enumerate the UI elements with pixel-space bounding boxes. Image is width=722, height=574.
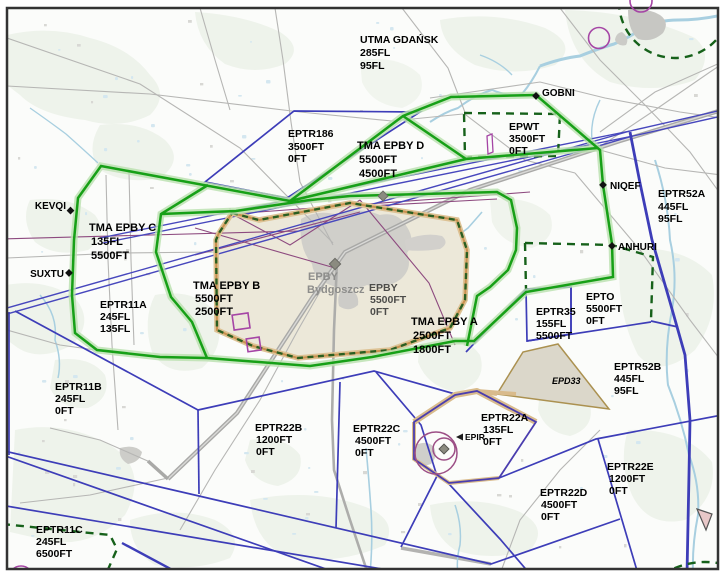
svg-text:135FL: 135FL xyxy=(100,323,131,335)
svg-text:UTMA GDAŃSK: UTMA GDAŃSK xyxy=(360,33,439,46)
svg-text:EPTR186: EPTR186 xyxy=(288,128,334,140)
svg-text:EPBY: EPBY xyxy=(308,271,339,283)
svg-text:0FT: 0FT xyxy=(256,446,275,458)
svg-text:285FL: 285FL xyxy=(360,47,391,59)
svg-text:245FL: 245FL xyxy=(100,311,131,323)
svg-text:EPBY: EPBY xyxy=(369,282,398,294)
svg-text:4500FT: 4500FT xyxy=(355,435,392,447)
svg-text:0FT: 0FT xyxy=(509,145,528,157)
svg-text:NIQEF: NIQEF xyxy=(610,181,641,192)
svg-text:KEVQI: KEVQI xyxy=(35,201,66,212)
svg-text:EPTR22E: EPTR22E xyxy=(607,461,654,473)
svg-text:EPTR22B: EPTR22B xyxy=(255,422,303,434)
svg-text:EPTR22D: EPTR22D xyxy=(540,487,588,499)
svg-text:EPTR11A: EPTR11A xyxy=(100,299,147,311)
svg-text:ANHURI: ANHURI xyxy=(618,242,657,253)
svg-text:6500FT: 6500FT xyxy=(36,548,73,560)
svg-text:2500FT: 2500FT xyxy=(413,330,451,342)
svg-text:95FL: 95FL xyxy=(360,60,385,72)
svg-text:2500FT: 2500FT xyxy=(195,306,233,318)
svg-text:3500FT: 3500FT xyxy=(509,133,546,145)
svg-text:EPWT: EPWT xyxy=(509,121,540,133)
svg-text:0FT: 0FT xyxy=(55,405,74,417)
svg-text:TMA EPBY A: TMA EPBY A xyxy=(411,316,478,328)
svg-text:1200FT: 1200FT xyxy=(609,473,646,485)
svg-text:0FT: 0FT xyxy=(483,436,502,448)
svg-text:245FL: 245FL xyxy=(36,536,67,548)
svg-text:5500FT: 5500FT xyxy=(359,154,397,166)
svg-text:0FT: 0FT xyxy=(370,306,389,318)
svg-text:3500FT: 3500FT xyxy=(288,141,325,153)
svg-text:445FL: 445FL xyxy=(658,201,689,213)
svg-text:TMA EPBY C: TMA EPBY C xyxy=(89,222,156,234)
svg-text:EPIR: EPIR xyxy=(465,432,485,442)
svg-text:5500FT: 5500FT xyxy=(370,294,407,306)
svg-text:0FT: 0FT xyxy=(586,315,605,327)
svg-text:0FT: 0FT xyxy=(609,485,628,497)
svg-text:1200FT: 1200FT xyxy=(256,434,293,446)
svg-text:GOBNI: GOBNI xyxy=(542,88,575,99)
svg-text:EPD33: EPD33 xyxy=(552,376,581,386)
svg-text:Bydgoszcz: Bydgoszcz xyxy=(307,284,365,296)
svg-text:4500FT: 4500FT xyxy=(541,499,578,511)
svg-text:EPTR35: EPTR35 xyxy=(536,306,576,318)
svg-text:95FL: 95FL xyxy=(614,385,639,397)
svg-text:5500FT: 5500FT xyxy=(586,303,623,315)
svg-text:135FL: 135FL xyxy=(91,236,123,248)
svg-text:0FT: 0FT xyxy=(288,153,307,165)
svg-text:TMA EPBY D: TMA EPBY D xyxy=(357,140,424,152)
svg-text:EPTR11C: EPTR11C xyxy=(36,524,83,536)
svg-text:245FL: 245FL xyxy=(55,393,86,405)
svg-text:EPTR52A: EPTR52A xyxy=(658,188,706,200)
svg-text:135FL: 135FL xyxy=(483,424,514,436)
svg-text:5500FT: 5500FT xyxy=(91,250,129,262)
svg-text:95FL: 95FL xyxy=(658,213,683,225)
svg-text:EPTR22C: EPTR22C xyxy=(353,423,401,435)
svg-text:EPTO: EPTO xyxy=(586,291,614,303)
svg-text:TMA EPBY B: TMA EPBY B xyxy=(193,280,260,292)
svg-text:445FL: 445FL xyxy=(614,373,645,385)
svg-text:5500FT: 5500FT xyxy=(195,293,233,305)
svg-text:SUXTU: SUXTU xyxy=(30,269,64,280)
svg-text:0FT: 0FT xyxy=(355,447,374,459)
svg-text:EPTR22A: EPTR22A xyxy=(481,412,529,424)
svg-text:5500FT: 5500FT xyxy=(536,330,573,342)
svg-text:EPTR52B: EPTR52B xyxy=(614,361,662,373)
svg-text:1800FT: 1800FT xyxy=(413,344,451,356)
svg-text:155FL: 155FL xyxy=(536,318,567,330)
svg-text:4500FT: 4500FT xyxy=(359,168,397,180)
svg-text:EPTR11B: EPTR11B xyxy=(55,381,102,393)
svg-text:0FT: 0FT xyxy=(541,511,560,523)
